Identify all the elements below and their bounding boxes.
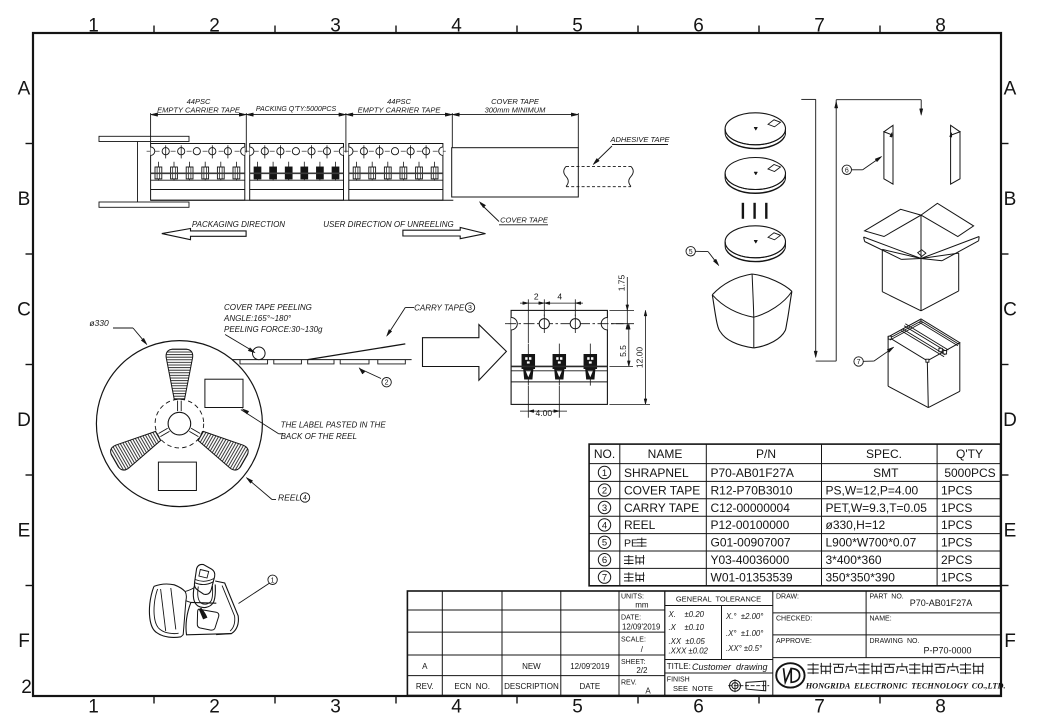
svg-text:X. ±0.20: X. ±0.20 xyxy=(668,610,705,619)
svg-text:COVER TAPE: COVER TAPE xyxy=(500,216,549,225)
svg-text:SHRAPNEL: SHRAPNEL xyxy=(624,466,689,480)
svg-text:PS,W=12,P=4.00: PS,W=12,P=4.00 xyxy=(826,483,919,497)
svg-text:C: C xyxy=(17,300,31,321)
svg-text:Y03-40036000: Y03-40036000 xyxy=(711,553,790,567)
svg-text:3*400*360: 3*400*360 xyxy=(826,553,882,567)
svg-text:3: 3 xyxy=(330,697,341,718)
svg-text:B: B xyxy=(1004,189,1017,210)
svg-text:SEE NOTE: SEE NOTE xyxy=(673,684,713,693)
svg-text:.XX° ±0.5°: .XX° ±0.5° xyxy=(726,644,762,653)
svg-text:5000PCS: 5000PCS xyxy=(944,466,995,480)
svg-text:TITLE:: TITLE: xyxy=(667,662,691,671)
svg-text:Customer drawing: Customer drawing xyxy=(692,662,768,672)
svg-text:E: E xyxy=(18,521,31,542)
svg-text:1PCS: 1PCS xyxy=(941,570,972,584)
svg-text:DATE:: DATE: xyxy=(621,615,641,622)
svg-text:2PCS: 2PCS xyxy=(941,553,972,567)
svg-text:A: A xyxy=(18,79,31,100)
svg-text:DRAWING NO.: DRAWING NO. xyxy=(870,638,920,645)
svg-text:E: E xyxy=(1004,521,1017,542)
svg-text:NAME: NAME xyxy=(648,447,683,461)
svg-text:F: F xyxy=(1004,631,1016,652)
svg-text:8: 8 xyxy=(935,16,946,37)
svg-text:APPROVE:: APPROVE: xyxy=(776,638,812,645)
svg-text:G01-00907007: G01-00907007 xyxy=(711,536,791,550)
svg-text:UNITS:: UNITS: xyxy=(621,594,644,601)
svg-text:REV.: REV. xyxy=(416,682,434,691)
svg-text:1PCS: 1PCS xyxy=(941,536,972,550)
svg-text:6: 6 xyxy=(602,555,607,566)
svg-text:REV.: REV. xyxy=(621,680,637,687)
svg-text:6: 6 xyxy=(693,697,704,718)
svg-text:2/2: 2/2 xyxy=(636,666,648,675)
svg-text:6: 6 xyxy=(693,16,704,37)
svg-text:2: 2 xyxy=(602,486,607,497)
svg-text:1.75: 1.75 xyxy=(617,274,627,291)
svg-text:3: 3 xyxy=(468,305,472,312)
svg-text:PACKAGING DIRECTION: PACKAGING DIRECTION xyxy=(192,220,285,229)
svg-text:300mm MINIMUM: 300mm MINIMUM xyxy=(485,106,547,115)
svg-text:SMT: SMT xyxy=(873,466,899,480)
svg-text:2: 2 xyxy=(209,16,220,37)
svg-text:1: 1 xyxy=(602,468,607,479)
svg-text:P70-AB01F27A: P70-AB01F27A xyxy=(910,598,973,608)
svg-text:W01-01353539: W01-01353539 xyxy=(711,570,793,584)
svg-text:5: 5 xyxy=(572,16,583,37)
svg-text:.X° ±1.00°: .X° ±1.00° xyxy=(726,629,763,638)
svg-text:1PCS: 1PCS xyxy=(941,501,972,515)
svg-text:X.° ±2.00°: X.° ±2.00° xyxy=(725,612,763,621)
svg-text:EMPTY CARRIER TAPE: EMPTY CARRIER TAPE xyxy=(157,106,241,115)
svg-text:P12-00100000: P12-00100000 xyxy=(711,518,790,532)
svg-text:PACKING Q'TY:5000PCS: PACKING Q'TY:5000PCS xyxy=(256,106,337,113)
svg-text:4: 4 xyxy=(557,292,562,302)
svg-text:1: 1 xyxy=(88,697,99,718)
svg-text:SPEC.: SPEC. xyxy=(866,447,902,461)
svg-text:1: 1 xyxy=(88,16,99,37)
svg-text:D: D xyxy=(1003,410,1017,431)
svg-text:mm: mm xyxy=(635,601,649,610)
svg-text:NO.: NO. xyxy=(594,447,615,461)
svg-text:COVER TAPE PEELING: COVER TAPE PEELING xyxy=(224,303,312,312)
svg-text:P-P70-0000: P-P70-0000 xyxy=(923,646,971,656)
svg-text:SHEET:: SHEET: xyxy=(621,659,646,666)
svg-text:THE LABEL PASTED IN THE: THE LABEL PASTED IN THE xyxy=(281,421,387,430)
svg-text:6: 6 xyxy=(845,167,849,174)
svg-text:ø330,H=12: ø330,H=12 xyxy=(826,518,886,532)
svg-text:SCALE:: SCALE: xyxy=(621,637,646,644)
svg-text:CARRY TAPE: CARRY TAPE xyxy=(414,304,465,313)
svg-text:ECN NO.: ECN NO. xyxy=(454,682,490,691)
svg-text:NAME:: NAME: xyxy=(870,616,892,623)
svg-text:7: 7 xyxy=(814,16,825,37)
svg-text:B: B xyxy=(18,189,31,210)
svg-text:4: 4 xyxy=(451,16,462,37)
svg-text:R12-P70B3010: R12-P70B3010 xyxy=(711,483,793,497)
svg-text:12/09'2019: 12/09'2019 xyxy=(570,662,610,671)
svg-text:7: 7 xyxy=(814,697,825,718)
svg-text:L900*W700*0.07: L900*W700*0.07 xyxy=(826,536,917,550)
svg-text:2: 2 xyxy=(385,380,389,387)
svg-text:P70-AB01F27A: P70-AB01F27A xyxy=(711,466,794,480)
svg-text:12.00: 12.00 xyxy=(635,347,645,369)
svg-text:EMPTY CARRIER TAPE: EMPTY CARRIER TAPE xyxy=(358,106,442,115)
svg-text:Q'TY: Q'TY xyxy=(956,447,983,461)
svg-text:1: 1 xyxy=(271,577,275,584)
svg-text:5.5: 5.5 xyxy=(618,345,628,357)
svg-text:PEELING FORCE:30~130g: PEELING FORCE:30~130g xyxy=(224,325,323,334)
svg-text:2: 2 xyxy=(209,697,220,718)
svg-text:DRAW:: DRAW: xyxy=(776,594,799,601)
svg-text:FINISH: FINISH xyxy=(667,677,690,684)
svg-text:PE: PE xyxy=(624,538,638,550)
svg-text:ADHESIVE TAPE: ADHESIVE TAPE xyxy=(609,135,670,144)
svg-text:.XX ±0.05: .XX ±0.05 xyxy=(669,637,706,646)
svg-text:HONGRIDA ELECTRONIC TECHNOLO: HONGRIDA ELECTRONIC TECHNOLOGY CO.,LTD. xyxy=(805,682,1006,691)
svg-text:ø330: ø330 xyxy=(89,318,109,328)
svg-text:C12-00000004: C12-00000004 xyxy=(711,501,791,515)
svg-text:2: 2 xyxy=(534,292,539,302)
svg-text:REEL: REEL xyxy=(278,493,300,503)
svg-text:8: 8 xyxy=(935,697,946,718)
svg-text:DESCRIPTION: DESCRIPTION xyxy=(504,682,559,691)
svg-text:3: 3 xyxy=(330,16,341,37)
svg-text:5: 5 xyxy=(602,538,607,549)
svg-text:PET,W=9.3,T=0.05: PET,W=9.3,T=0.05 xyxy=(826,501,928,515)
svg-text:12/09'2019: 12/09'2019 xyxy=(622,623,660,632)
svg-text:A: A xyxy=(422,662,428,671)
svg-text:5: 5 xyxy=(572,697,583,718)
svg-text:BACK OF THE REEL: BACK OF THE REEL xyxy=(281,432,357,441)
svg-text:REEL: REEL xyxy=(624,518,656,532)
svg-text:DATE: DATE xyxy=(580,682,601,691)
svg-text:.XXX ±0.02: .XXX ±0.02 xyxy=(669,647,709,656)
svg-text:7: 7 xyxy=(602,573,607,584)
svg-text:C: C xyxy=(1003,300,1017,321)
svg-text:COVER TAPE: COVER TAPE xyxy=(624,483,700,497)
svg-text:A: A xyxy=(1004,79,1017,100)
svg-text:PART NO.: PART NO. xyxy=(870,594,904,601)
svg-text:1PCS: 1PCS xyxy=(941,483,972,497)
svg-text:1PCS: 1PCS xyxy=(941,518,972,532)
svg-text:NEW: NEW xyxy=(522,662,541,671)
svg-text:4: 4 xyxy=(602,520,607,531)
svg-text:CARRY TAPE: CARRY TAPE xyxy=(624,501,699,515)
svg-text:.X ±0.10: .X ±0.10 xyxy=(669,623,705,632)
svg-text:4.00: 4.00 xyxy=(536,408,553,418)
svg-text:ANGLE:165°~180°: ANGLE:165°~180° xyxy=(223,314,292,323)
svg-text:USER DIRECTION OF UNREELING: USER DIRECTION OF UNREELING xyxy=(323,220,454,229)
svg-text:GENERAL TOLERANCE: GENERAL TOLERANCE xyxy=(676,595,761,604)
svg-text:350*350*390: 350*350*390 xyxy=(826,570,896,584)
svg-text:P/N: P/N xyxy=(756,447,776,461)
svg-text:A: A xyxy=(645,687,651,696)
svg-text:4: 4 xyxy=(451,697,462,718)
svg-text:CHECKED:: CHECKED: xyxy=(776,616,812,623)
svg-text:D: D xyxy=(17,410,31,431)
svg-text:5: 5 xyxy=(689,249,693,256)
svg-text:3: 3 xyxy=(602,503,607,514)
svg-text:4: 4 xyxy=(303,495,307,502)
svg-text:2: 2 xyxy=(21,677,32,698)
svg-text:7: 7 xyxy=(857,359,861,366)
svg-text:F: F xyxy=(18,631,30,652)
